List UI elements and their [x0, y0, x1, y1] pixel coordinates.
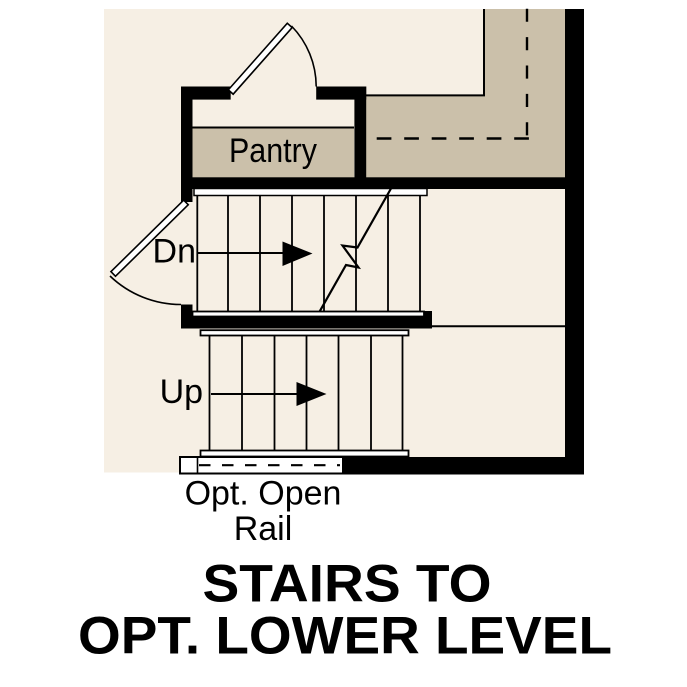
svg-text:Pantry: Pantry — [229, 132, 317, 170]
svg-text:OPT. LOWER LEVEL: OPT. LOWER LEVEL — [78, 607, 612, 666]
svg-text:Opt. Open: Opt. Open — [185, 475, 342, 513]
svg-text:Rail: Rail — [234, 510, 293, 548]
svg-text:Dn: Dn — [153, 233, 196, 271]
svg-text:Up: Up — [160, 373, 203, 411]
svg-text:STAIRS TO: STAIRS TO — [203, 555, 492, 614]
